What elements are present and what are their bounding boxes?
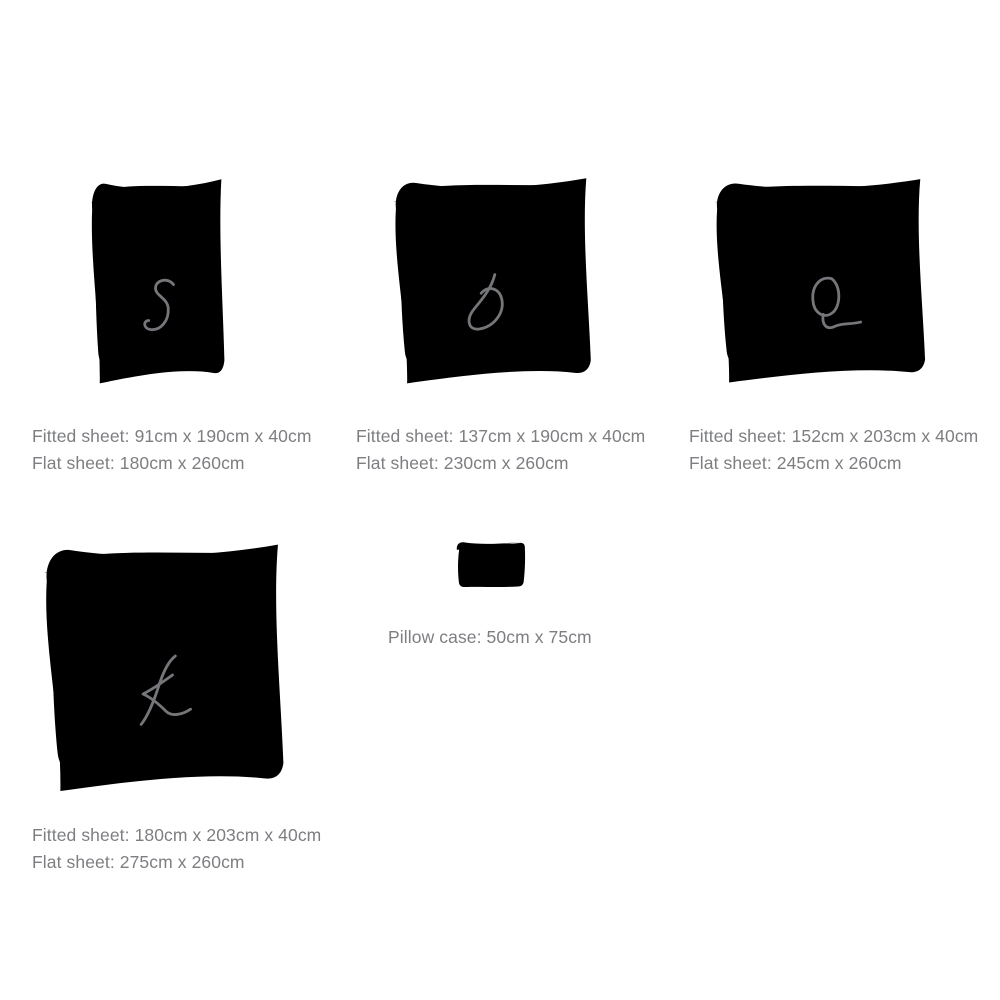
- single-fitted-sheet-dimensions: Fitted sheet: 91cm x 190cm x 40cm: [32, 423, 312, 450]
- bedding-size-guide: Fitted sheet: 91cm x 190cm x 40cm Flat s…: [0, 0, 1000, 1000]
- double-size-caption: Fitted sheet: 137cm x 190cm x 40cm Flat …: [356, 423, 645, 477]
- pillow-case-outline: [457, 541, 526, 587]
- king-flat-sheet-dimensions: Flat sheet: 275cm x 260cm: [32, 849, 321, 876]
- mattress-outline: [44, 545, 283, 791]
- single-bed-sketch: [80, 163, 232, 395]
- queen-flat-sheet-dimensions: Flat sheet: 245cm x 260cm: [689, 450, 978, 477]
- size-card-single: [80, 163, 232, 395]
- queen-bed-sketch: [698, 163, 937, 394]
- pillow-outline-left: [94, 567, 156, 607]
- size-card-double: [378, 162, 602, 395]
- pillow-outline: [128, 197, 189, 239]
- king-bed-sketch: [25, 525, 297, 805]
- single-size-caption: Fitted sheet: 91cm x 190cm x 40cm Flat s…: [32, 423, 312, 477]
- queen-fitted-sheet-dimensions: Fitted sheet: 152cm x 203cm x 40cm: [689, 423, 978, 450]
- double-flat-sheet-dimensions: Flat sheet: 230cm x 260cm: [356, 450, 645, 477]
- pillow-outline-right: [829, 197, 893, 236]
- queen-size-caption: Fitted sheet: 152cm x 203cm x 40cm Flat …: [689, 423, 978, 477]
- pillow-case-caption: Pillow case: 50cm x 75cm: [388, 624, 592, 651]
- pillow-outline-left: [426, 198, 489, 238]
- size-card-queen: [698, 163, 937, 394]
- pillow-case-sketch: [450, 536, 530, 594]
- double-bed-sketch: [378, 162, 602, 395]
- size-card-pillow-case: [450, 536, 530, 594]
- pillow-outline-left: [754, 197, 815, 236]
- double-fitted-sheet-dimensions: Fitted sheet: 137cm x 190cm x 40cm: [356, 423, 645, 450]
- king-size-caption: Fitted sheet: 180cm x 203cm x 40cm Flat …: [32, 822, 321, 876]
- pillow-case-dimensions: Pillow case: 50cm x 75cm: [388, 624, 592, 651]
- pillow-outline-right: [171, 567, 234, 607]
- pillow-outline-right: [504, 198, 568, 238]
- king-fitted-sheet-dimensions: Fitted sheet: 180cm x 203cm x 40cm: [32, 822, 321, 849]
- size-card-king: [25, 525, 297, 805]
- single-flat-sheet-dimensions: Flat sheet: 180cm x 260cm: [32, 450, 312, 477]
